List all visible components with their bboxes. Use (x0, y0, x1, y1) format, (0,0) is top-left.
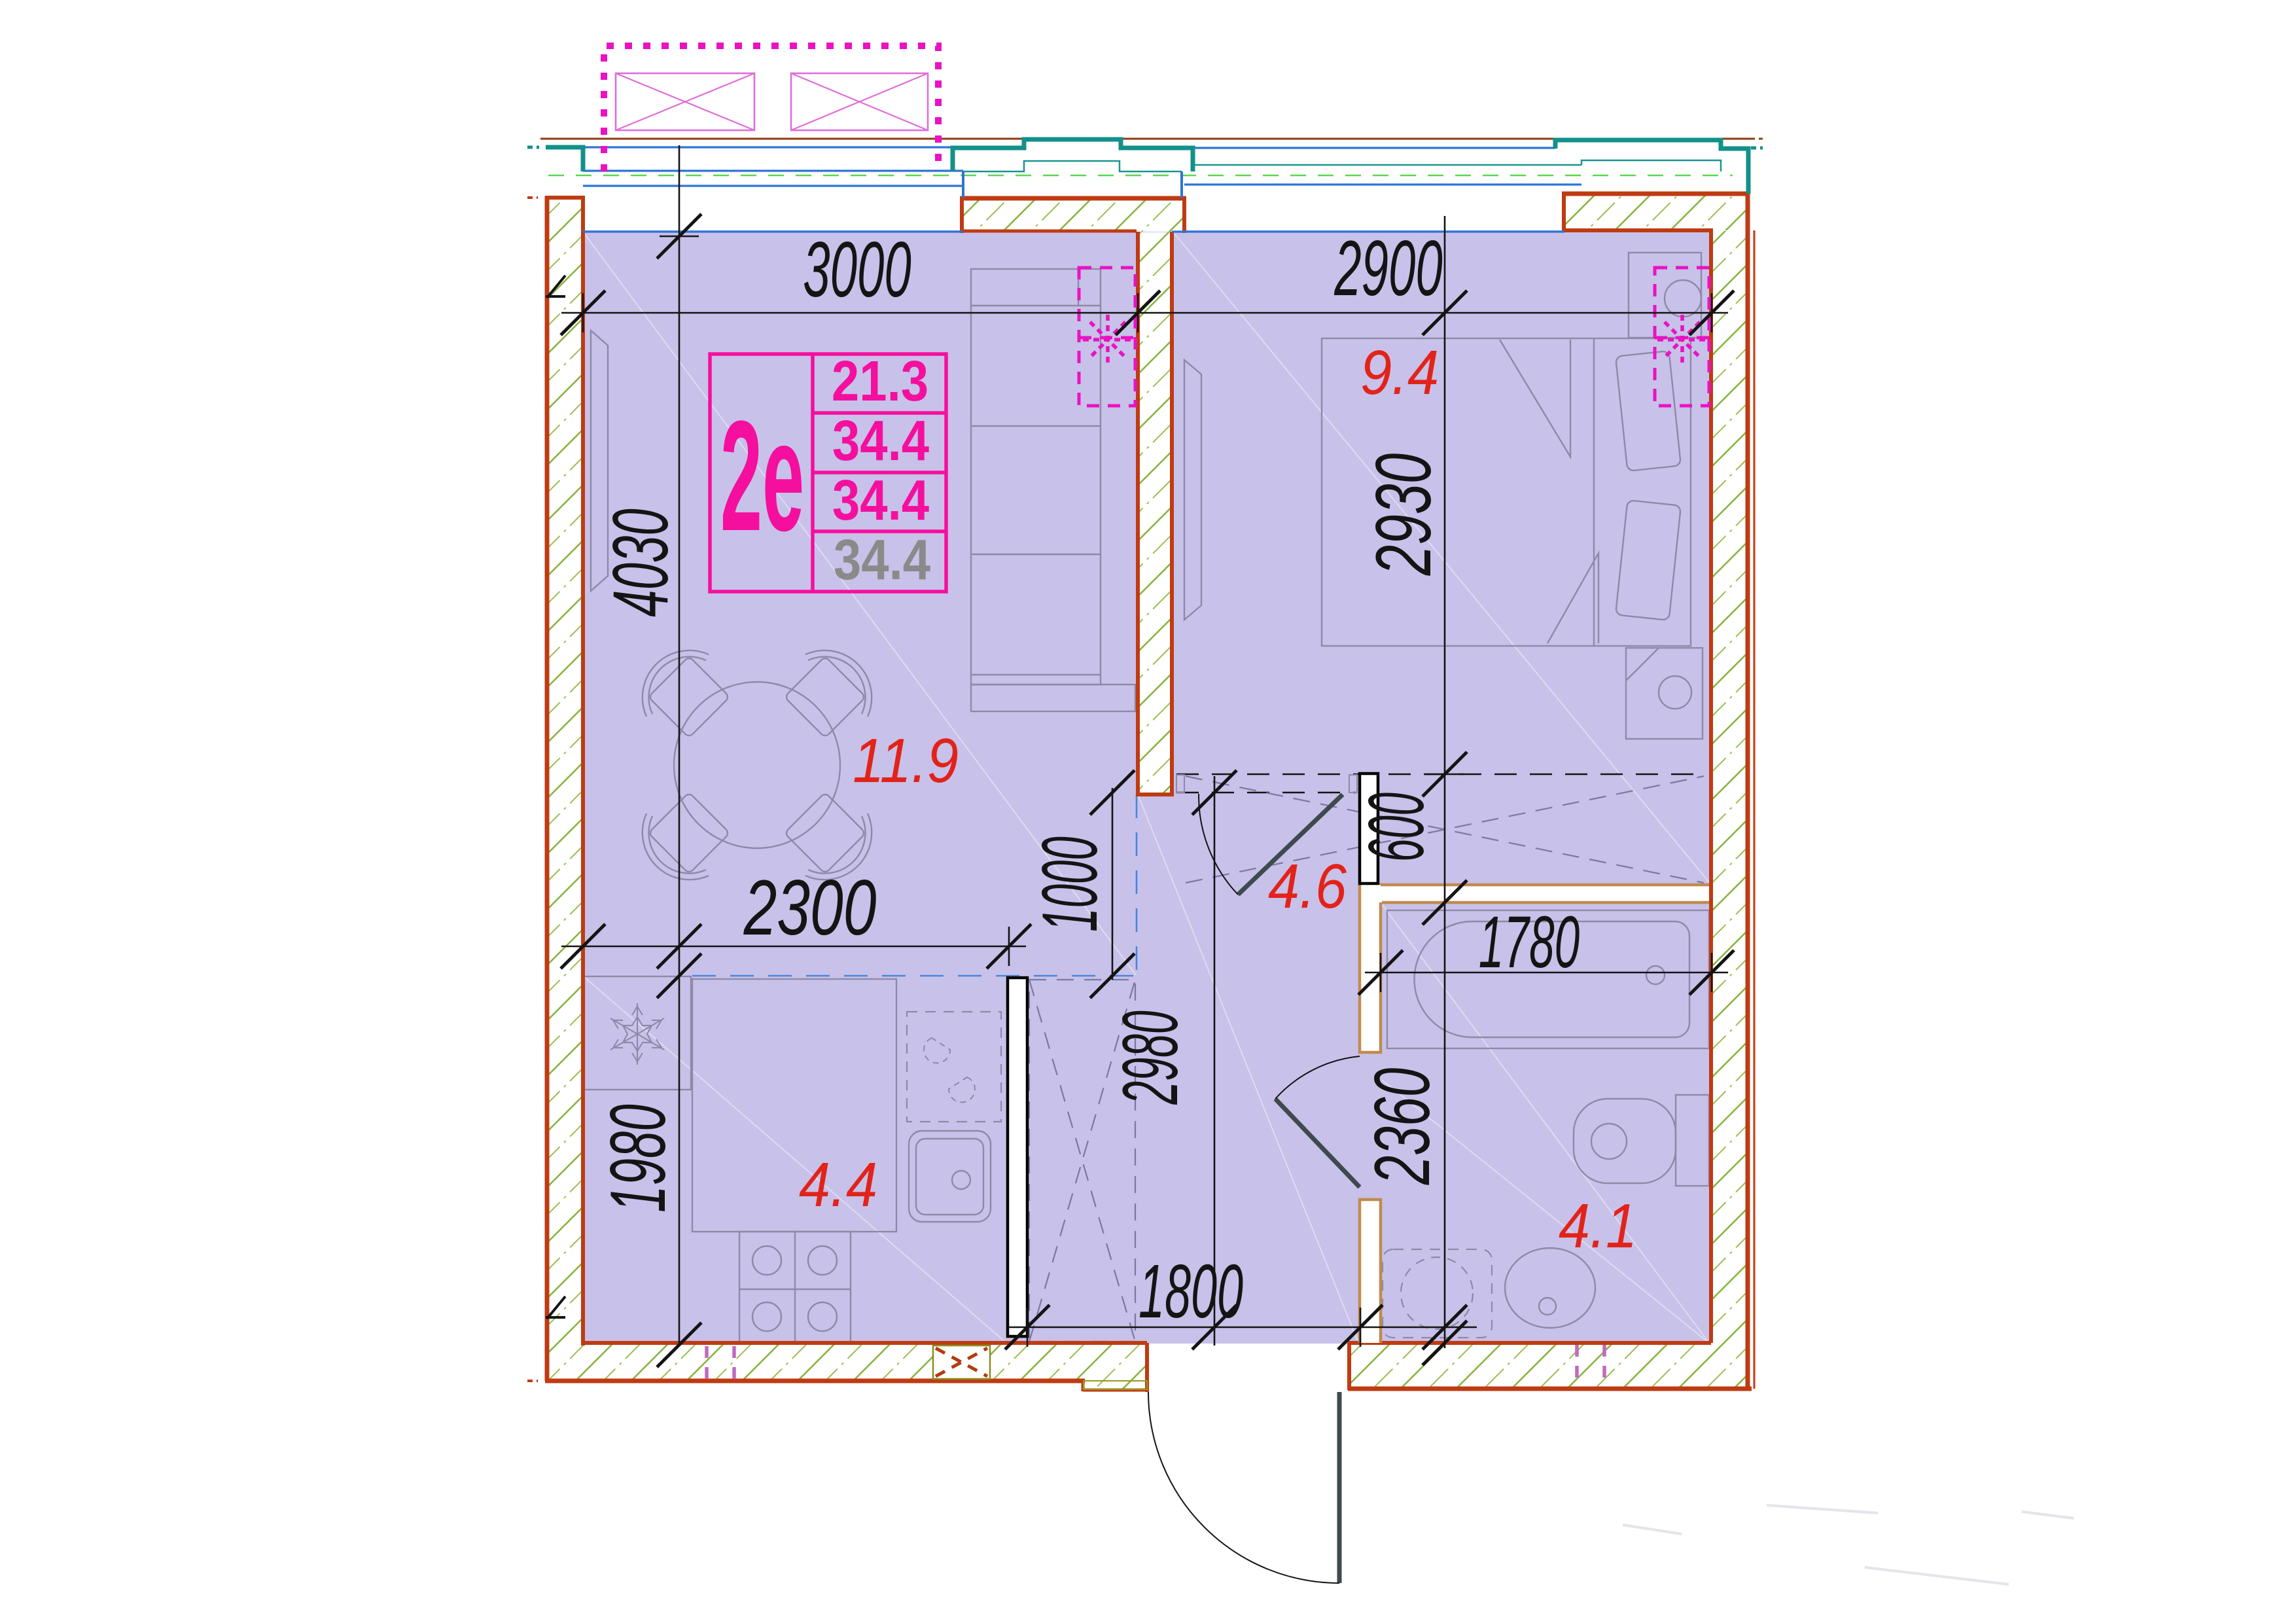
svg-text:2360: 2360 (1358, 1068, 1446, 1186)
svg-text:34.4: 34.4 (832, 469, 930, 532)
svg-text:1980: 1980 (595, 1104, 682, 1213)
svg-text:1780: 1780 (1479, 901, 1580, 983)
svg-text:21.3: 21.3 (832, 349, 928, 413)
svg-text:3000: 3000 (803, 226, 911, 313)
svg-text:600: 600 (1353, 793, 1441, 862)
svg-text:2300: 2300 (743, 864, 877, 952)
svg-text:11.9: 11.9 (853, 726, 959, 796)
svg-text:34.4: 34.4 (832, 409, 930, 473)
svg-text:9.4: 9.4 (1360, 338, 1439, 408)
svg-text:1800: 1800 (1139, 1250, 1243, 1334)
svg-text:4.6: 4.6 (1268, 851, 1347, 921)
svg-text:2900: 2900 (1334, 225, 1443, 312)
svg-text:2930: 2930 (1359, 454, 1447, 577)
svg-text:4.4: 4.4 (799, 1150, 877, 1220)
svg-text:2980: 2980 (1107, 1010, 1194, 1105)
svg-text:34.4: 34.4 (834, 528, 931, 592)
svg-text:2e: 2e (720, 388, 804, 563)
svg-text:4030: 4030 (597, 508, 684, 617)
svg-text:4.1: 4.1 (1559, 1191, 1637, 1261)
svg-text:1000: 1000 (1027, 836, 1114, 931)
